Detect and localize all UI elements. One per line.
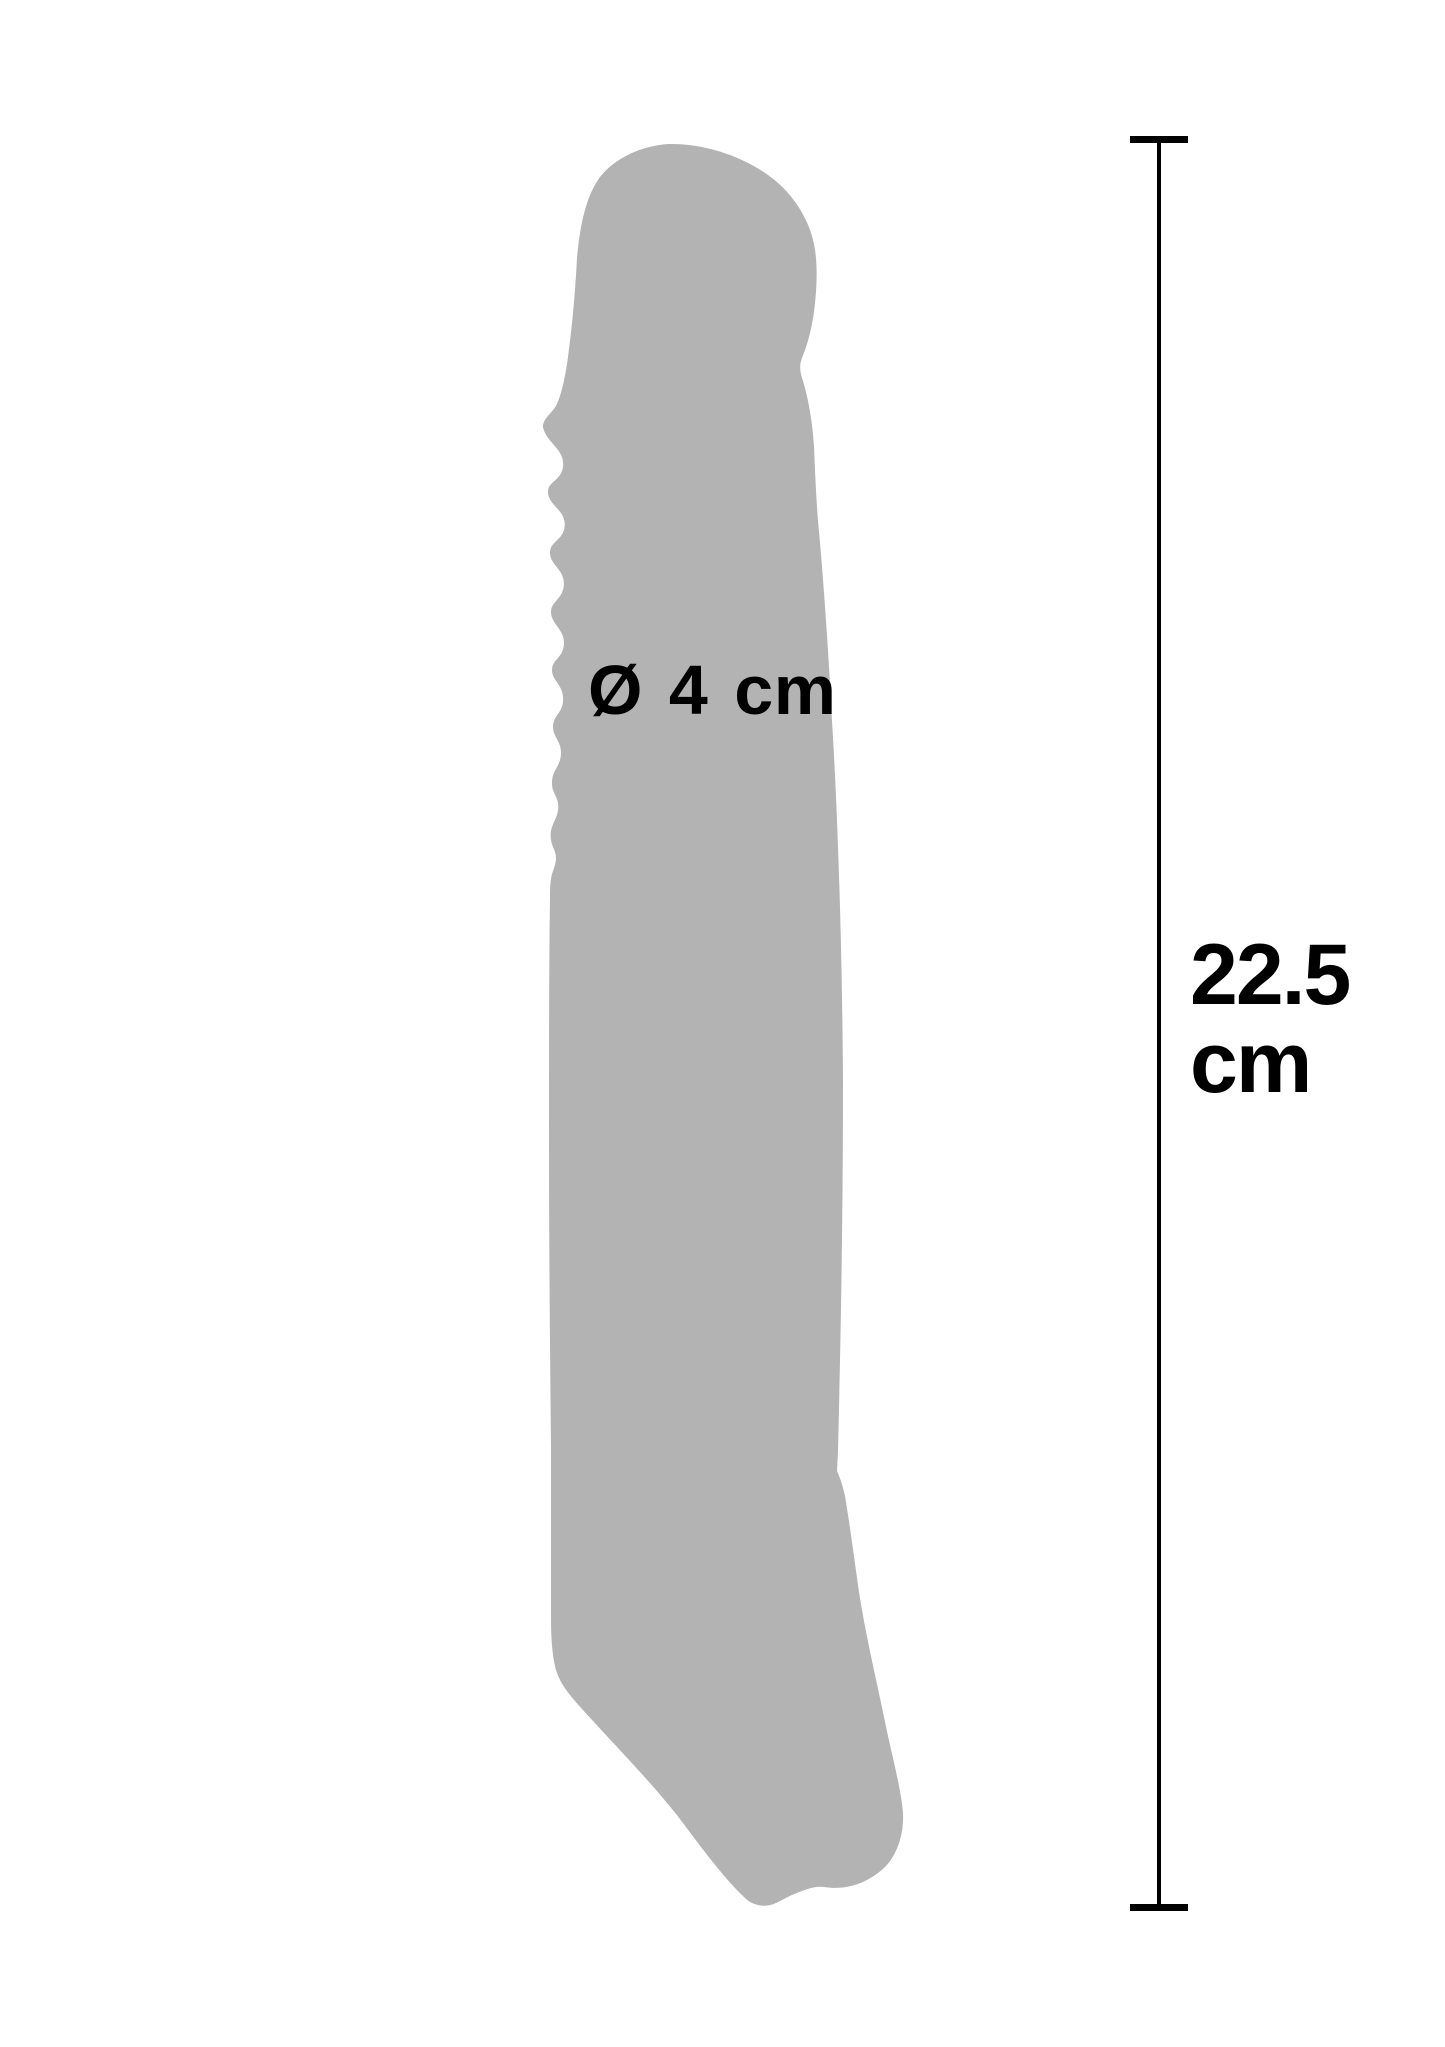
diameter-label: Ø 4 cm — [588, 655, 836, 725]
dimension-line — [1157, 139, 1161, 1907]
dimension-tick-bottom — [1130, 1904, 1188, 1911]
silhouette-shape — [543, 144, 903, 1906]
length-unit: cm — [1190, 1019, 1349, 1107]
dimension-tick-top — [1130, 136, 1188, 143]
length-label: 22.5 cm — [1190, 931, 1349, 1107]
product-dimension-diagram: Ø 4 cm 22.5 cm — [0, 0, 1445, 2047]
length-value: 22.5 — [1190, 931, 1349, 1019]
